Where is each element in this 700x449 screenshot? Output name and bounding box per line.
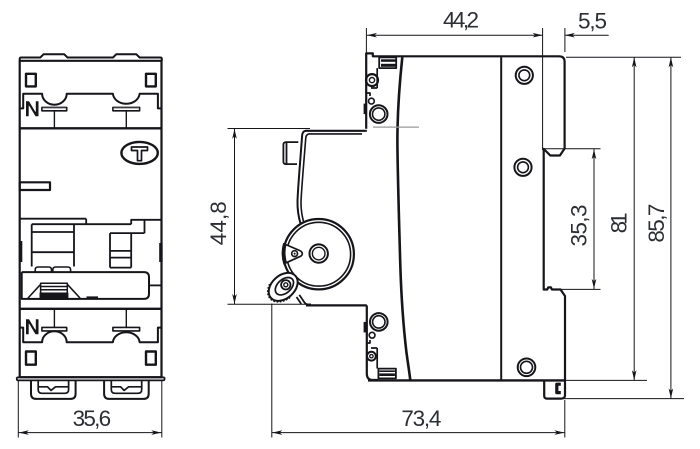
svg-text:35,6: 35,6: [73, 406, 112, 431]
svg-text:44,2: 44,2: [443, 8, 479, 33]
svg-text:81: 81: [607, 212, 632, 233]
svg-text:35,3: 35,3: [567, 205, 592, 247]
svg-text:85,7: 85,7: [644, 204, 669, 243]
svg-text:73,4: 73,4: [401, 406, 441, 431]
svg-text:5,5: 5,5: [578, 9, 607, 34]
svg-text:44,8: 44,8: [206, 201, 231, 245]
